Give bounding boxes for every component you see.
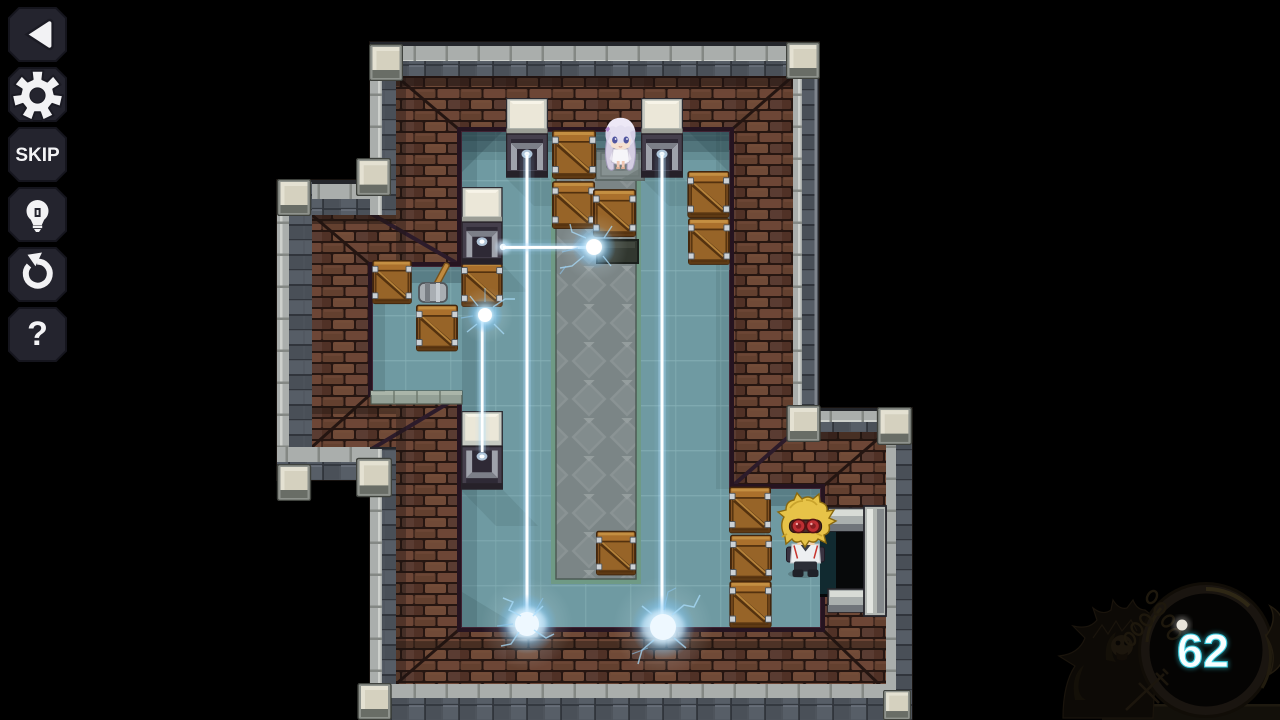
svg-text:62: 62 <box>1177 624 1229 677</box>
svg-text:?: ? <box>27 315 48 353</box>
svg-text:SKIP: SKIP <box>15 145 60 166</box>
